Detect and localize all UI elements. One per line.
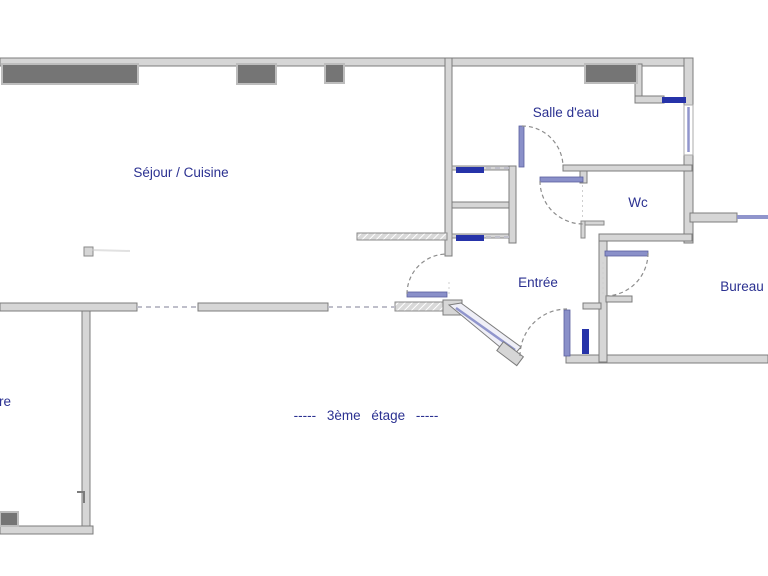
label-sejour-cuisine: Séjour / Cuisine <box>133 165 228 180</box>
exterior-walls <box>0 58 768 534</box>
salle-deau-door-arc <box>522 126 563 167</box>
bureau-door-leaf <box>605 251 648 256</box>
entrance-door-leaf <box>564 310 570 356</box>
room-labels: Séjour / Cuisine Salle d'eau Wc Entrée B… <box>0 105 764 423</box>
label-entree: Entrée <box>518 275 558 290</box>
light-windows <box>684 105 768 219</box>
label-salle-deau: Salle d'eau <box>533 105 599 120</box>
counter-faint-line <box>92 250 130 251</box>
window-box-top-small <box>325 64 344 83</box>
nook-horizontal-wall <box>635 96 664 103</box>
window-boxes <box>0 64 637 526</box>
counter-stub <box>84 247 93 256</box>
closet-right-wall <box>509 166 516 243</box>
bureau-door-arc <box>605 253 648 296</box>
bureau-top-wall <box>690 213 737 222</box>
label-floor-caption: ----- 3ème étage ----- <box>294 408 439 423</box>
window-box-top-mid <box>237 64 276 84</box>
label-wc: Wc <box>628 195 648 210</box>
window-box-top-left <box>2 64 138 84</box>
window-box-chambre <box>0 512 18 526</box>
kitchen-hatched-wall <box>357 233 447 240</box>
window-box-salle-deau <box>585 64 637 83</box>
closet-mid-wall <box>452 202 516 208</box>
floorplan-canvas: Séjour / Cuisine Salle d'eau Wc Entrée B… <box>0 0 768 576</box>
bureau-window-bar <box>737 215 768 219</box>
chambre-bottom-wall <box>0 526 93 534</box>
entree-closet-stub <box>583 303 601 309</box>
label-bureau: Bureau <box>720 279 764 294</box>
salle-deau-bottom-wall <box>563 165 692 171</box>
mid-wall-hatched <box>395 302 446 311</box>
floorplan-drawing: Séjour / Cuisine Salle d'eau Wc Entrée B… <box>0 0 768 576</box>
bottom-wall-right <box>566 355 768 363</box>
salle-deau-door-leaf <box>519 126 524 167</box>
interior-walls <box>0 58 737 503</box>
sejour-door-arc <box>407 254 447 294</box>
window-bar-closet-bottom <box>456 235 484 241</box>
wc-door-leaf <box>540 177 583 182</box>
window-bar-entree-closet <box>582 329 589 354</box>
mid-wall-center <box>198 303 328 311</box>
wc-bottom-wall <box>599 234 692 241</box>
wc-door-arc <box>540 181 583 224</box>
label-chambre-partial: re <box>0 394 11 409</box>
window-bar-nook <box>662 97 686 103</box>
entrance-door-arc <box>520 309 567 356</box>
mid-wall-left <box>0 303 137 311</box>
sejour-door-leaf <box>407 292 447 297</box>
salle-deau-left-wall <box>445 58 452 256</box>
navy-window-bars <box>456 97 686 354</box>
entree-wall-stub <box>606 296 632 302</box>
window-bar-closet-top <box>456 167 484 173</box>
